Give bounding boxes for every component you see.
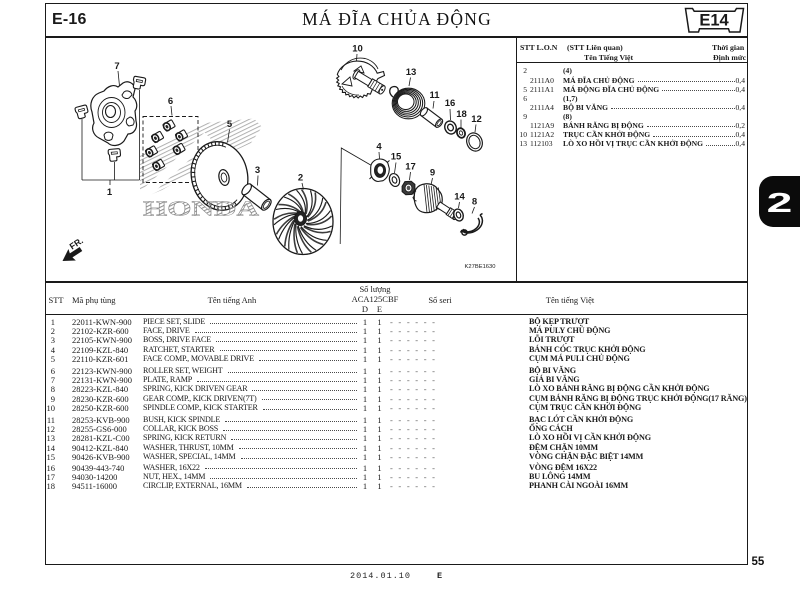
svg-text:1: 1: [107, 187, 113, 198]
svg-text:HONDA: HONDA: [143, 196, 260, 220]
svg-text:3: 3: [255, 165, 260, 176]
svg-text:14: 14: [454, 192, 465, 203]
svg-text:10: 10: [352, 44, 363, 55]
svg-text:17: 17: [405, 162, 416, 173]
svg-text:E14: E14: [699, 12, 729, 30]
svg-text:2: 2: [298, 173, 303, 184]
svg-text:8: 8: [472, 197, 477, 208]
svg-text:FR.: FR.: [68, 235, 85, 251]
svg-text:K27BE1630: K27BE1630: [465, 264, 496, 270]
svg-text:15: 15: [391, 152, 402, 163]
svg-text:9: 9: [430, 168, 435, 179]
